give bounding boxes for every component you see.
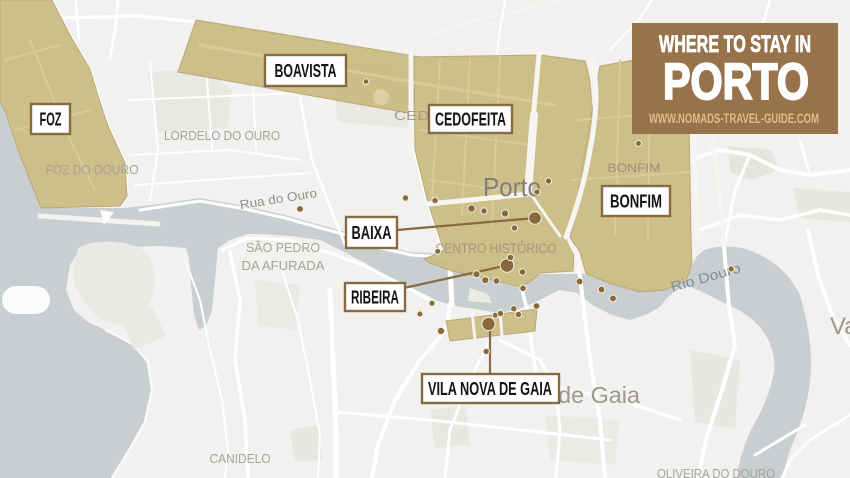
svg-text:FOZ: FOZ bbox=[40, 110, 62, 130]
svg-text:RIBEIRA: RIBEIRA bbox=[351, 288, 399, 308]
svg-text:BAIXA: BAIXA bbox=[352, 223, 392, 243]
svg-text:CANIDELO: CANIDELO bbox=[210, 451, 271, 466]
svg-text:BONFIM: BONFIM bbox=[608, 161, 661, 175]
svg-text:CEDOFEITA: CEDOFEITA bbox=[435, 110, 506, 130]
svg-text:OLIVEIRA DO DOURO: OLIVEIRA DO DOURO bbox=[657, 467, 775, 478]
svg-text:BONFIM: BONFIM bbox=[610, 192, 662, 212]
svg-text:BOAVISTA: BOAVISTA bbox=[275, 61, 337, 81]
svg-text:SÃO PEDRO: SÃO PEDRO bbox=[246, 240, 320, 255]
svg-text:VILA NOVA DE GAIA: VILA NOVA DE GAIA bbox=[428, 379, 552, 399]
svg-text:WWW.NOMADS-TRAVEL-GUIDE.COM: WWW.NOMADS-TRAVEL-GUIDE.COM bbox=[649, 111, 819, 126]
svg-text:Porto: Porto bbox=[483, 172, 541, 202]
svg-text:PORTO: PORTO bbox=[663, 53, 809, 110]
svg-text:CENTRO HISTÓRICO: CENTRO HISTÓRICO bbox=[436, 241, 557, 256]
svg-text:DA AFURADA: DA AFURADA bbox=[242, 258, 325, 273]
svg-text:Va: Va bbox=[830, 313, 850, 340]
svg-text:FOZ DO DOURO: FOZ DO DOURO bbox=[46, 163, 139, 177]
svg-text:LORDELO DO OURO: LORDELO DO OURO bbox=[164, 128, 280, 143]
